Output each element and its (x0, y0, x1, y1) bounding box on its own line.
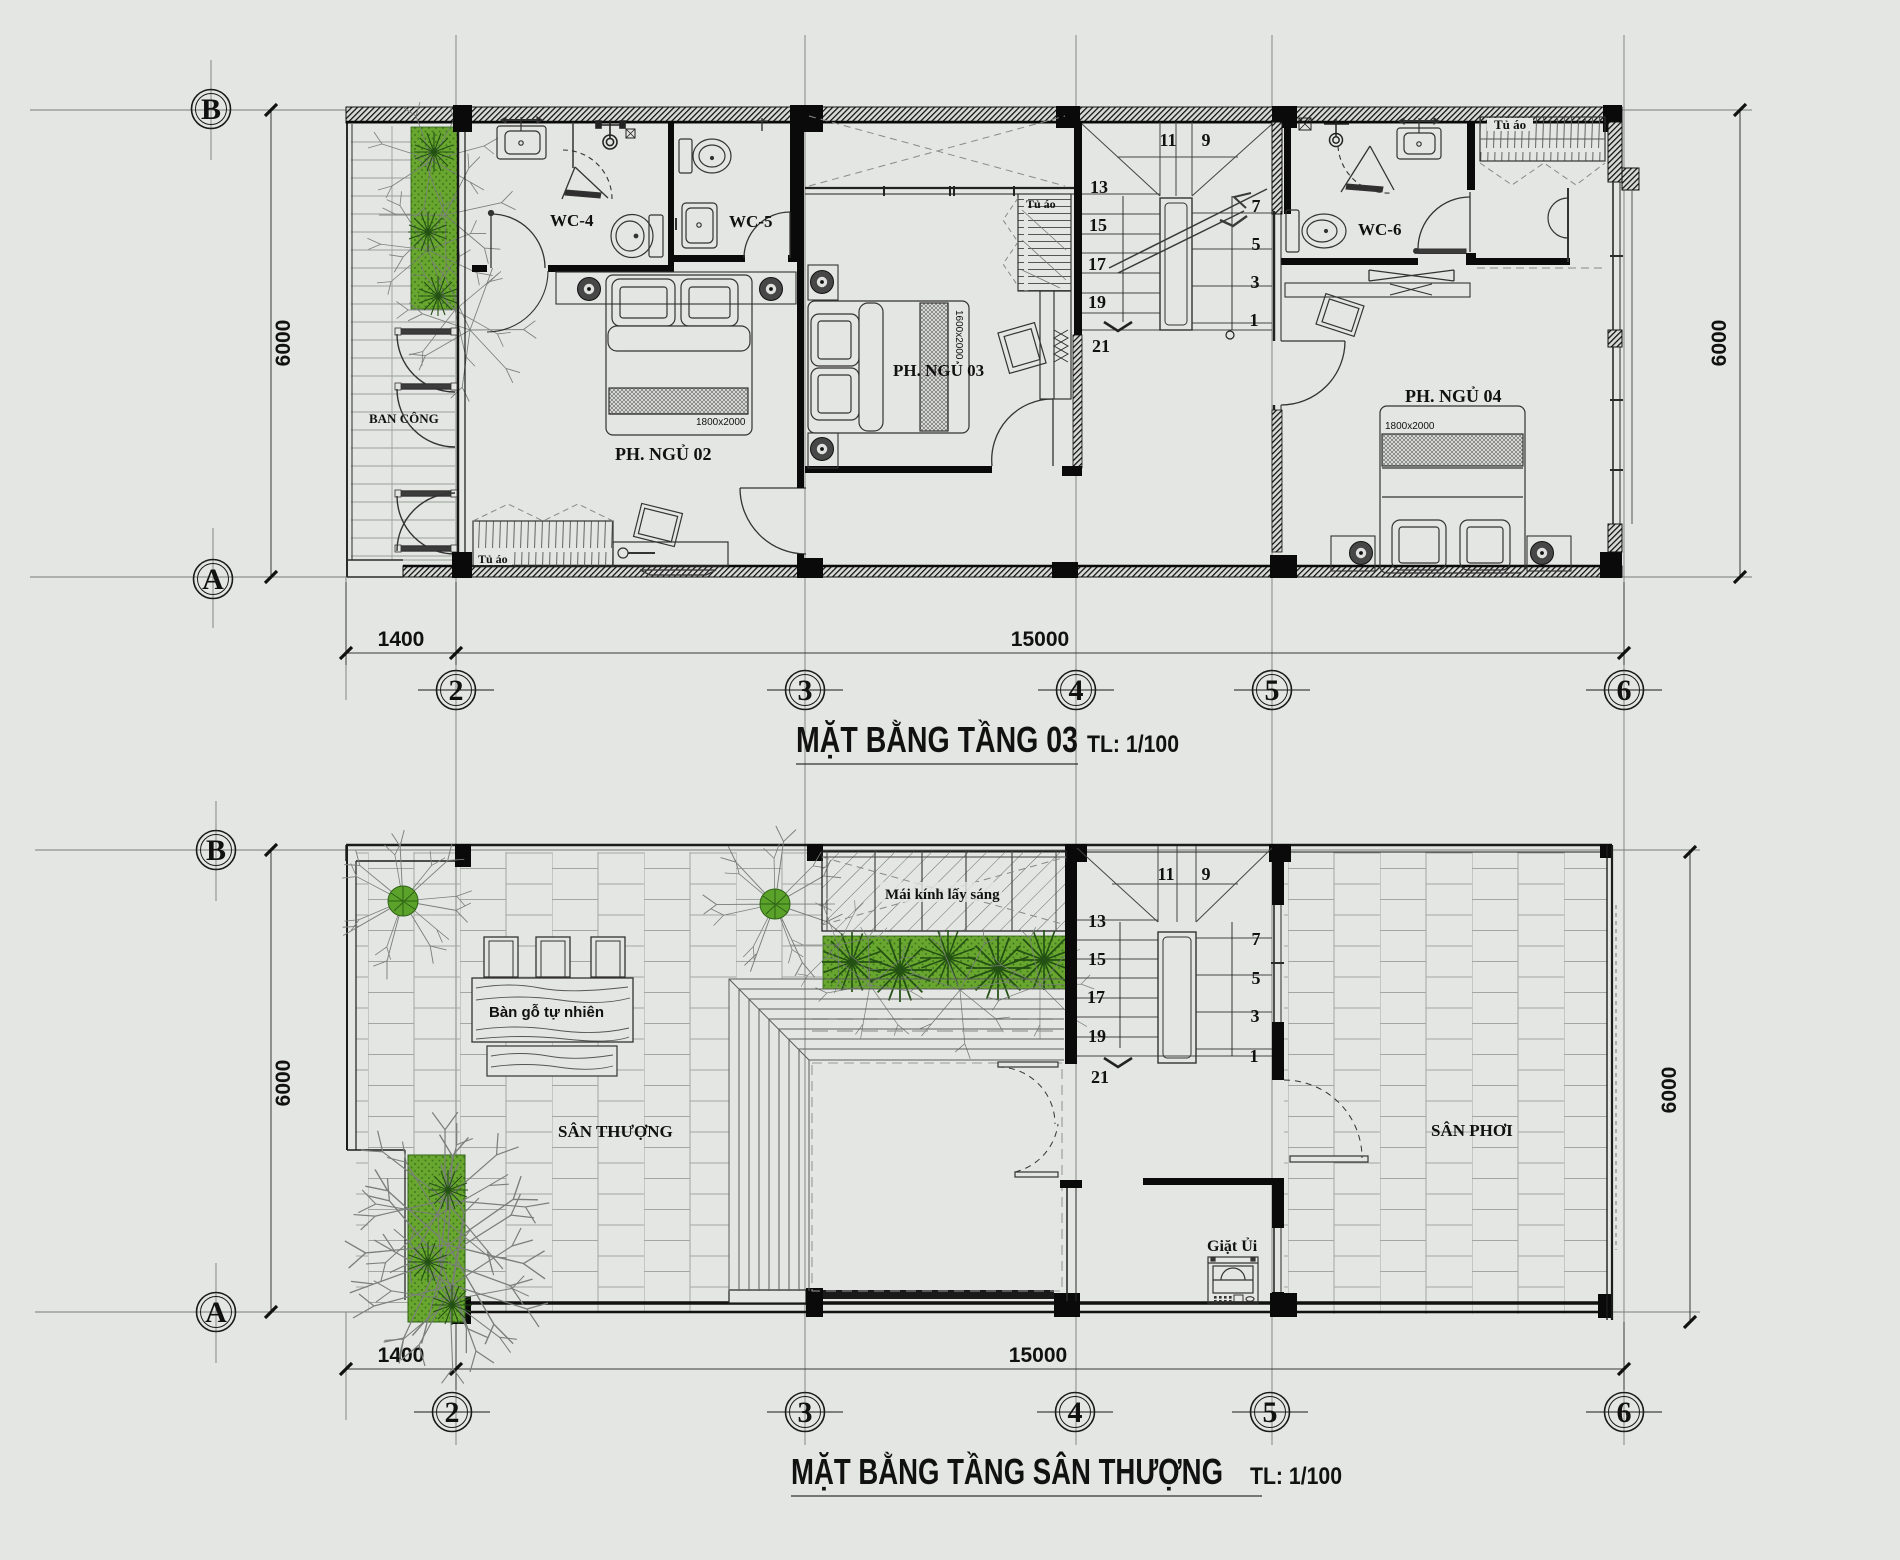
svg-text:1800x2000: 1800x2000 (696, 417, 746, 428)
svg-text:Tủ áo: Tủ áo (1026, 197, 1056, 211)
svg-text:5: 5 (1263, 1396, 1278, 1429)
svg-text:PH. NGỦ 03: PH. NGỦ 03 (893, 361, 984, 380)
svg-text:B: B (206, 834, 226, 867)
svg-text:4: 4 (1069, 674, 1084, 707)
svg-text:3: 3 (1251, 1006, 1260, 1026)
svg-text:6: 6 (1617, 674, 1632, 707)
svg-text:WC-4: WC-4 (550, 211, 594, 230)
svg-text:WC-5: WC-5 (729, 212, 772, 231)
svg-text:3: 3 (798, 674, 813, 707)
svg-text:1: 1 (1250, 1046, 1259, 1066)
svg-text:17: 17 (1087, 987, 1105, 1007)
svg-text:15: 15 (1088, 949, 1106, 969)
svg-text:TL: 1/100: TL: 1/100 (1087, 731, 1179, 758)
svg-text:15000: 15000 (1011, 628, 1069, 651)
svg-text:5: 5 (1265, 674, 1280, 707)
svg-text:Tủ áo: Tủ áo (1494, 117, 1526, 132)
svg-text:Giặt Ủi: Giặt Ủi (1207, 1236, 1258, 1255)
svg-text:4: 4 (1068, 1396, 1083, 1429)
svg-text:BAN CÔNG: BAN CÔNG (369, 411, 439, 426)
svg-text:1800x2000: 1800x2000 (1385, 421, 1435, 432)
svg-text:21: 21 (1091, 1067, 1109, 1087)
svg-text:WC-6: WC-6 (1358, 220, 1401, 239)
svg-text:1: 1 (1250, 310, 1259, 330)
svg-text:2: 2 (445, 1396, 460, 1429)
svg-text:19: 19 (1088, 292, 1106, 312)
svg-text:6000: 6000 (272, 320, 295, 367)
svg-text:SÂN PHƠI: SÂN PHƠI (1431, 1121, 1513, 1140)
svg-text:MẶT BẰNG TẦNG SÂN THƯỢNG: MẶT BẰNG TẦNG SÂN THƯỢNG (791, 1450, 1223, 1492)
svg-text:Tủ áo: Tủ áo (478, 552, 508, 566)
svg-text:3: 3 (798, 1396, 813, 1429)
svg-text:19: 19 (1088, 1026, 1106, 1046)
svg-text:9: 9 (1202, 130, 1211, 150)
svg-text:6: 6 (1617, 1396, 1632, 1429)
svg-text:6000: 6000 (1708, 320, 1731, 367)
svg-text:7: 7 (1252, 196, 1261, 216)
svg-text:3: 3 (1251, 272, 1260, 292)
svg-text:6000: 6000 (1658, 1067, 1681, 1114)
svg-text:Bàn gỗ tự nhiên: Bàn gỗ tự nhiên (489, 1004, 604, 1021)
svg-text:15000: 15000 (1009, 1344, 1067, 1367)
svg-text:SÂN THƯỢNG: SÂN THƯỢNG (558, 1122, 673, 1141)
svg-text:MẶT BẰNG TẦNG 03: MẶT BẰNG TẦNG 03 (796, 719, 1078, 760)
svg-text:PH. NGỦ 02: PH. NGỦ 02 (615, 443, 712, 464)
svg-text:6000: 6000 (272, 1060, 295, 1107)
svg-text:B: B (201, 93, 221, 126)
svg-text:A: A (202, 563, 224, 596)
svg-text:11: 11 (1159, 130, 1176, 150)
svg-text:TL: 1/100: TL: 1/100 (1250, 1463, 1342, 1490)
svg-text:15: 15 (1089, 215, 1107, 235)
svg-text:7: 7 (1252, 929, 1261, 949)
svg-text:13: 13 (1090, 177, 1108, 197)
svg-text:1600x2000: 1600x2000 (953, 310, 964, 360)
svg-text:2: 2 (449, 674, 464, 707)
svg-text:1400: 1400 (378, 628, 425, 651)
svg-text:PH. NGỦ 04: PH. NGỦ 04 (1405, 385, 1502, 406)
svg-text:11: 11 (1157, 864, 1174, 884)
svg-text:9: 9 (1202, 864, 1211, 884)
svg-text:5: 5 (1252, 234, 1261, 254)
svg-text:13: 13 (1088, 911, 1106, 931)
svg-text:Mái kính lấy sáng: Mái kính lấy sáng (885, 887, 1000, 903)
svg-text:17: 17 (1088, 254, 1106, 274)
svg-text:5: 5 (1252, 968, 1261, 988)
svg-text:21: 21 (1092, 336, 1110, 356)
svg-text:A: A (205, 1296, 227, 1329)
